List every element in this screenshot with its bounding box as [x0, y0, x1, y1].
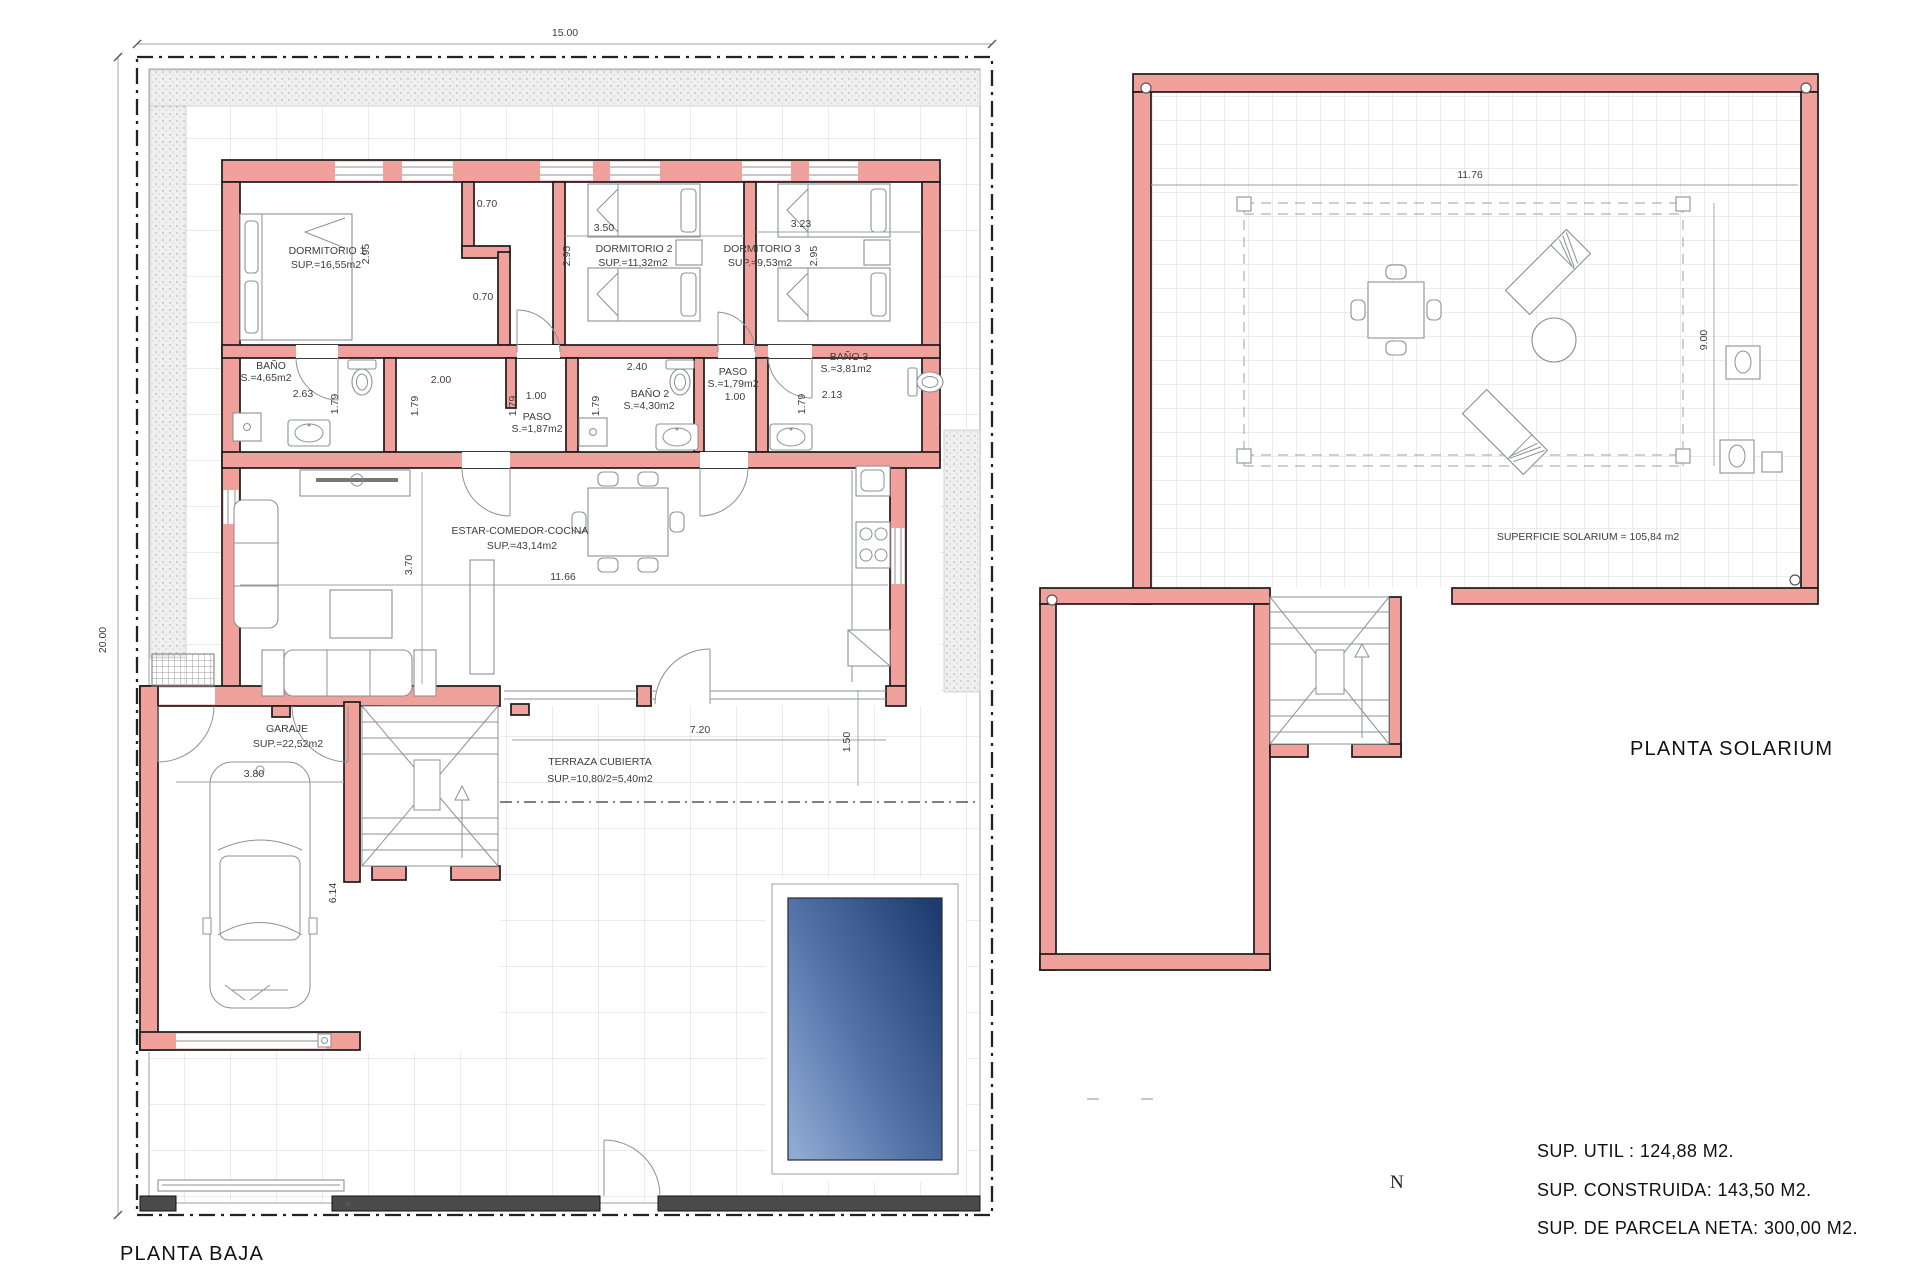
- room-area-estar: SUP.=43,14m2: [487, 540, 557, 552]
- dim-dorm1-h: 2.95: [360, 244, 372, 265]
- dim-paso2-h: 1.79: [796, 394, 808, 415]
- annotations: N SUP. UTIL : 124,88 M2. SUP. CONSTRUIDA…: [1390, 1141, 1858, 1238]
- dim-plot-height: 20.00: [97, 627, 109, 653]
- dim-paso1-h2: 1.79: [507, 396, 519, 417]
- summary-util: SUP. UTIL : 124,88 M2.: [1537, 1141, 1734, 1161]
- plan-title-baja: PLANTA BAJA: [120, 1243, 264, 1265]
- floorplan-sheet: 15.00 20.00: [0, 0, 1920, 1280]
- summary-construida: SUP. CONSTRUIDA: 143,50 M2.: [1537, 1180, 1812, 1200]
- dim-salon-h: 3.70: [403, 555, 415, 576]
- summary-parcela: SUP. DE PARCELA NETA: 300,00 M2.: [1537, 1218, 1858, 1238]
- car-top-view: [203, 762, 317, 1008]
- dim-paso1-h: 1.79: [409, 396, 421, 417]
- room-label-bano3: BAÑO 3: [830, 350, 869, 363]
- dim-paso1-w: 2.00: [431, 374, 452, 386]
- room-label-estar: ESTAR-COMEDOR-COCINA: [452, 525, 589, 537]
- dim-dorm2-h: 2.95: [561, 246, 573, 267]
- dim-paso2-w: 1.00: [725, 391, 746, 403]
- dim-nook-bottom: 0.70: [473, 291, 494, 303]
- room-area-bano2: S.=4,30m2: [623, 400, 674, 412]
- room-area-dormitorio-3: SUP.=9,53m2: [728, 257, 792, 269]
- floorplan-drawing: 15.00 20.00: [0, 0, 1920, 1280]
- plan-solarium: 11.76 9.00 SUPERFICIE SOLARIUM = 105,84 …: [1040, 74, 1833, 1099]
- dim-solarium-w: 11.76: [1457, 169, 1483, 181]
- room-area-paso2: S.=1,79m2: [707, 378, 758, 390]
- dim-terraza-h: 1.50: [841, 732, 853, 753]
- plan-title-solarium: PLANTA SOLARIUM: [1630, 738, 1833, 760]
- swimming-pool: [772, 884, 958, 1174]
- room-area-paso1: S.=1,87m2: [511, 423, 562, 435]
- side-table: [1532, 318, 1576, 362]
- dim-bano1-w: 2.63: [293, 388, 314, 400]
- room-label-dormitorio-2: DORMITORIO 2: [596, 243, 673, 255]
- room-label-bano2: BAÑO 2: [631, 387, 670, 400]
- room-label-dormitorio-3: DORMITORIO 3: [724, 243, 801, 255]
- dim-solarium-h: 9.00: [1698, 330, 1710, 351]
- room-label-paso1: PASO: [523, 411, 551, 423]
- roof-fixture-1: [1726, 346, 1760, 379]
- dim-plot-width: 15.00: [552, 27, 578, 39]
- solarium-surface-label: SUPERFICIE SOLARIUM = 105,84 m2: [1497, 531, 1680, 543]
- dim-salon-w: 11.66: [550, 571, 576, 583]
- dim-bano1-h: 1.79: [329, 394, 341, 415]
- room-area-dormitorio-1: SUP.=16,55m2: [291, 259, 361, 271]
- dim-bano2-w: 2.40: [627, 361, 648, 373]
- stairs-solarium: [1270, 597, 1389, 744]
- room-label-bano1: BAÑO: [256, 359, 286, 372]
- plan-planta-baja: 15.00 20.00: [97, 27, 996, 1265]
- dim-bano3-w: 2.13: [822, 389, 843, 401]
- room-area-dormitorio-2: SUP.=11,32m2: [598, 257, 668, 269]
- room-area-terraza: SUP.=10,80/2=5,40m2: [547, 773, 653, 785]
- dim-dorm2-w: 3.50: [594, 222, 615, 234]
- room-label-dormitorio-1: DORMITORIO 1: [289, 245, 366, 257]
- dim-bano2-h: 1.79: [590, 396, 602, 417]
- grating: [152, 654, 214, 686]
- room-area-garaje: SUP.=22,52m2: [253, 738, 323, 750]
- dim-paso1-w2: 1.00: [526, 390, 547, 402]
- room-area-bano1: S.=4,65m2: [240, 372, 291, 384]
- dim-dorm3-h: 2.95: [808, 246, 820, 267]
- dim-terraza-w: 7.20: [690, 724, 711, 736]
- dim-dorm3-w: 3.23: [791, 218, 812, 230]
- north-indicator: N: [1390, 1172, 1404, 1193]
- room-label-garaje: GARAJE: [266, 723, 308, 735]
- stairs-ground: [362, 706, 498, 866]
- room-label-terraza: TERRAZA CUBIERTA: [548, 756, 651, 768]
- dim-garaje-w: 3.80: [244, 768, 265, 780]
- room-label-paso2: PASO: [719, 366, 747, 378]
- room-area-bano3: S.=3,81m2: [820, 363, 871, 375]
- dim-garaje-h: 6.14: [327, 883, 339, 904]
- dim-nook-top: 0.70: [477, 198, 498, 210]
